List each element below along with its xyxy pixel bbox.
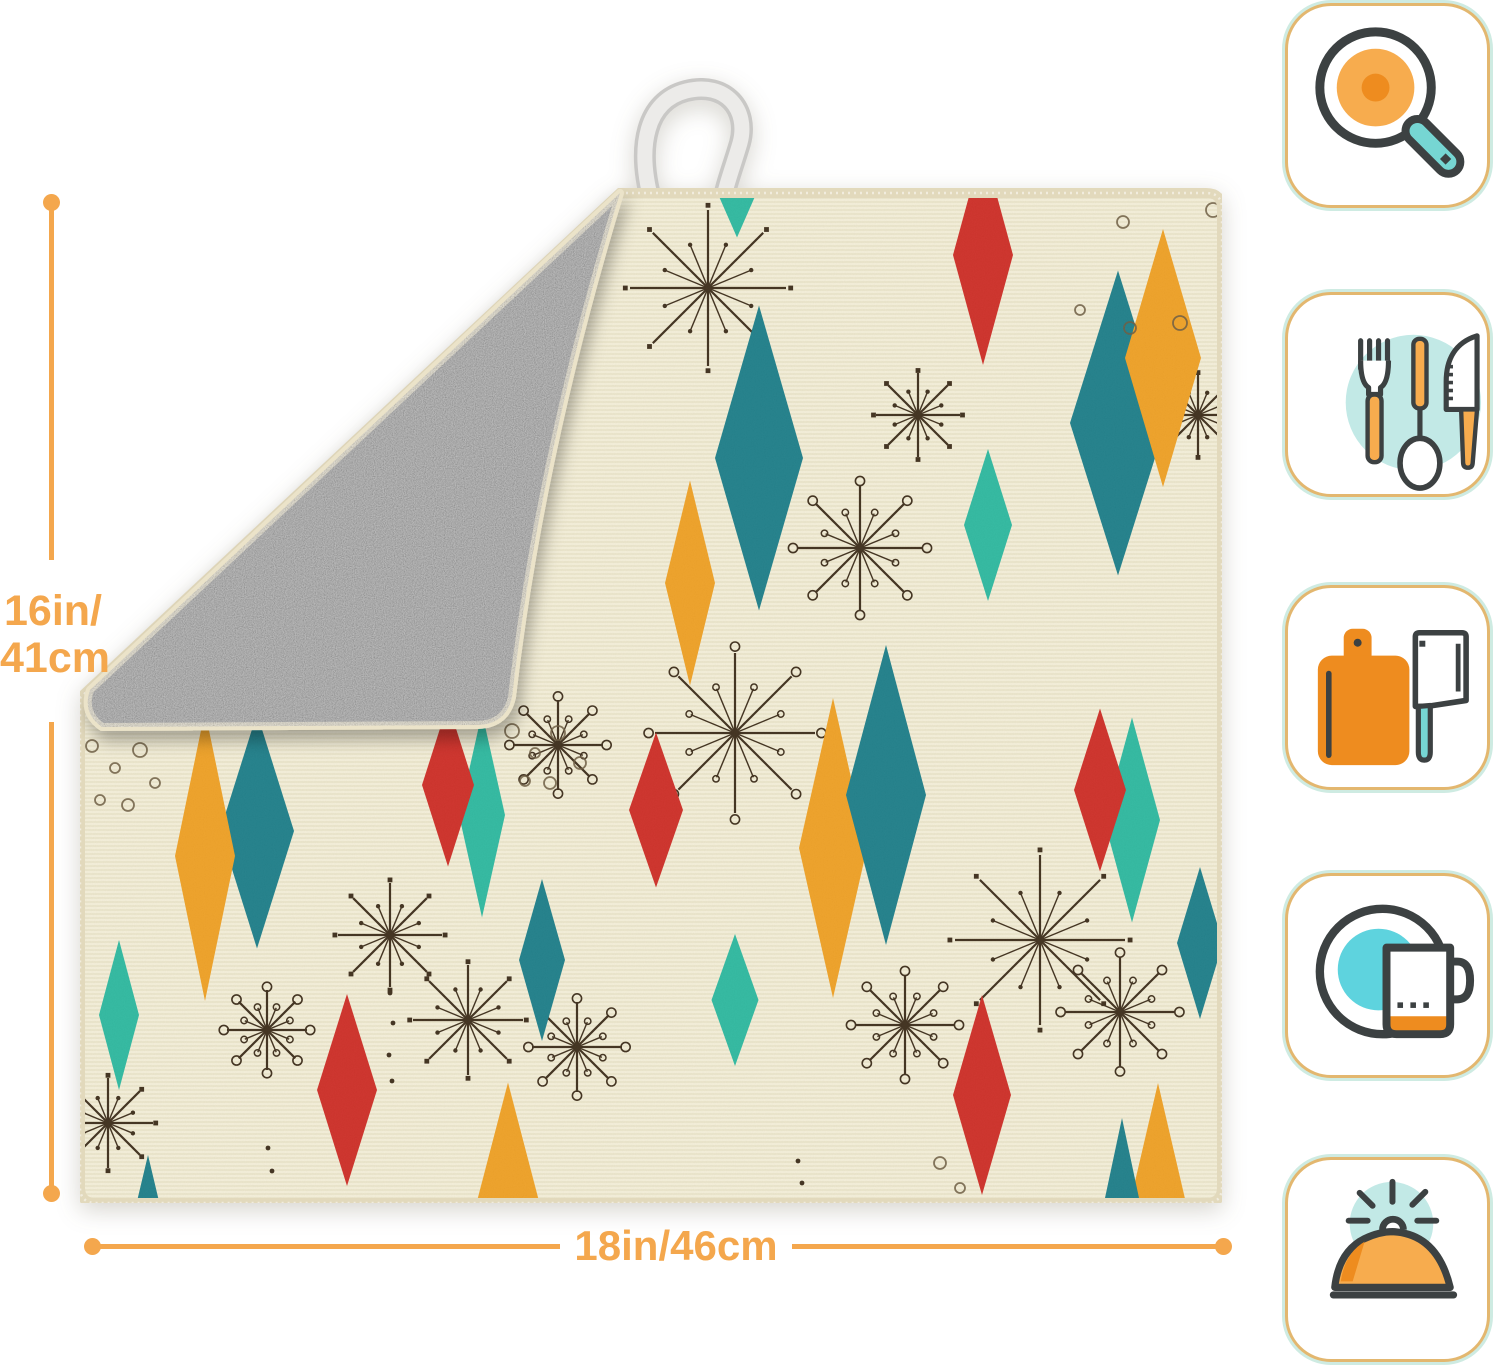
cutting-board-card — [1285, 585, 1490, 790]
dim-height-line-bottom — [49, 722, 54, 1193]
serving-cloche-icon — [1288, 1160, 1487, 1359]
dim-height-bottom-dot — [43, 1185, 60, 1202]
width-dimension-label: 18in/46cm — [560, 1222, 792, 1270]
dim-height-line-top — [49, 202, 54, 560]
frying-pan-card — [1285, 3, 1490, 208]
dim-width-line-left — [92, 1244, 560, 1249]
dish-mug-icon — [1288, 876, 1487, 1075]
cutlery-card — [1285, 292, 1490, 497]
frying-pan-icon — [1288, 6, 1487, 205]
dim-width-line-right — [792, 1244, 1223, 1249]
dim-width-right-dot — [1215, 1238, 1232, 1255]
hanging-loop — [645, 89, 742, 203]
cutlery-icon — [1288, 295, 1487, 494]
cutting-board-icon — [1288, 588, 1487, 787]
height-dimension-label: 16in/ 41cm — [0, 588, 106, 683]
serving-cloche-card — [1285, 1157, 1490, 1362]
dish-mug-card — [1285, 873, 1490, 1078]
drying-mat — [80, 78, 1222, 1203]
product-image: 16in/ 41cm 18in/46cm — [0, 0, 1500, 1365]
